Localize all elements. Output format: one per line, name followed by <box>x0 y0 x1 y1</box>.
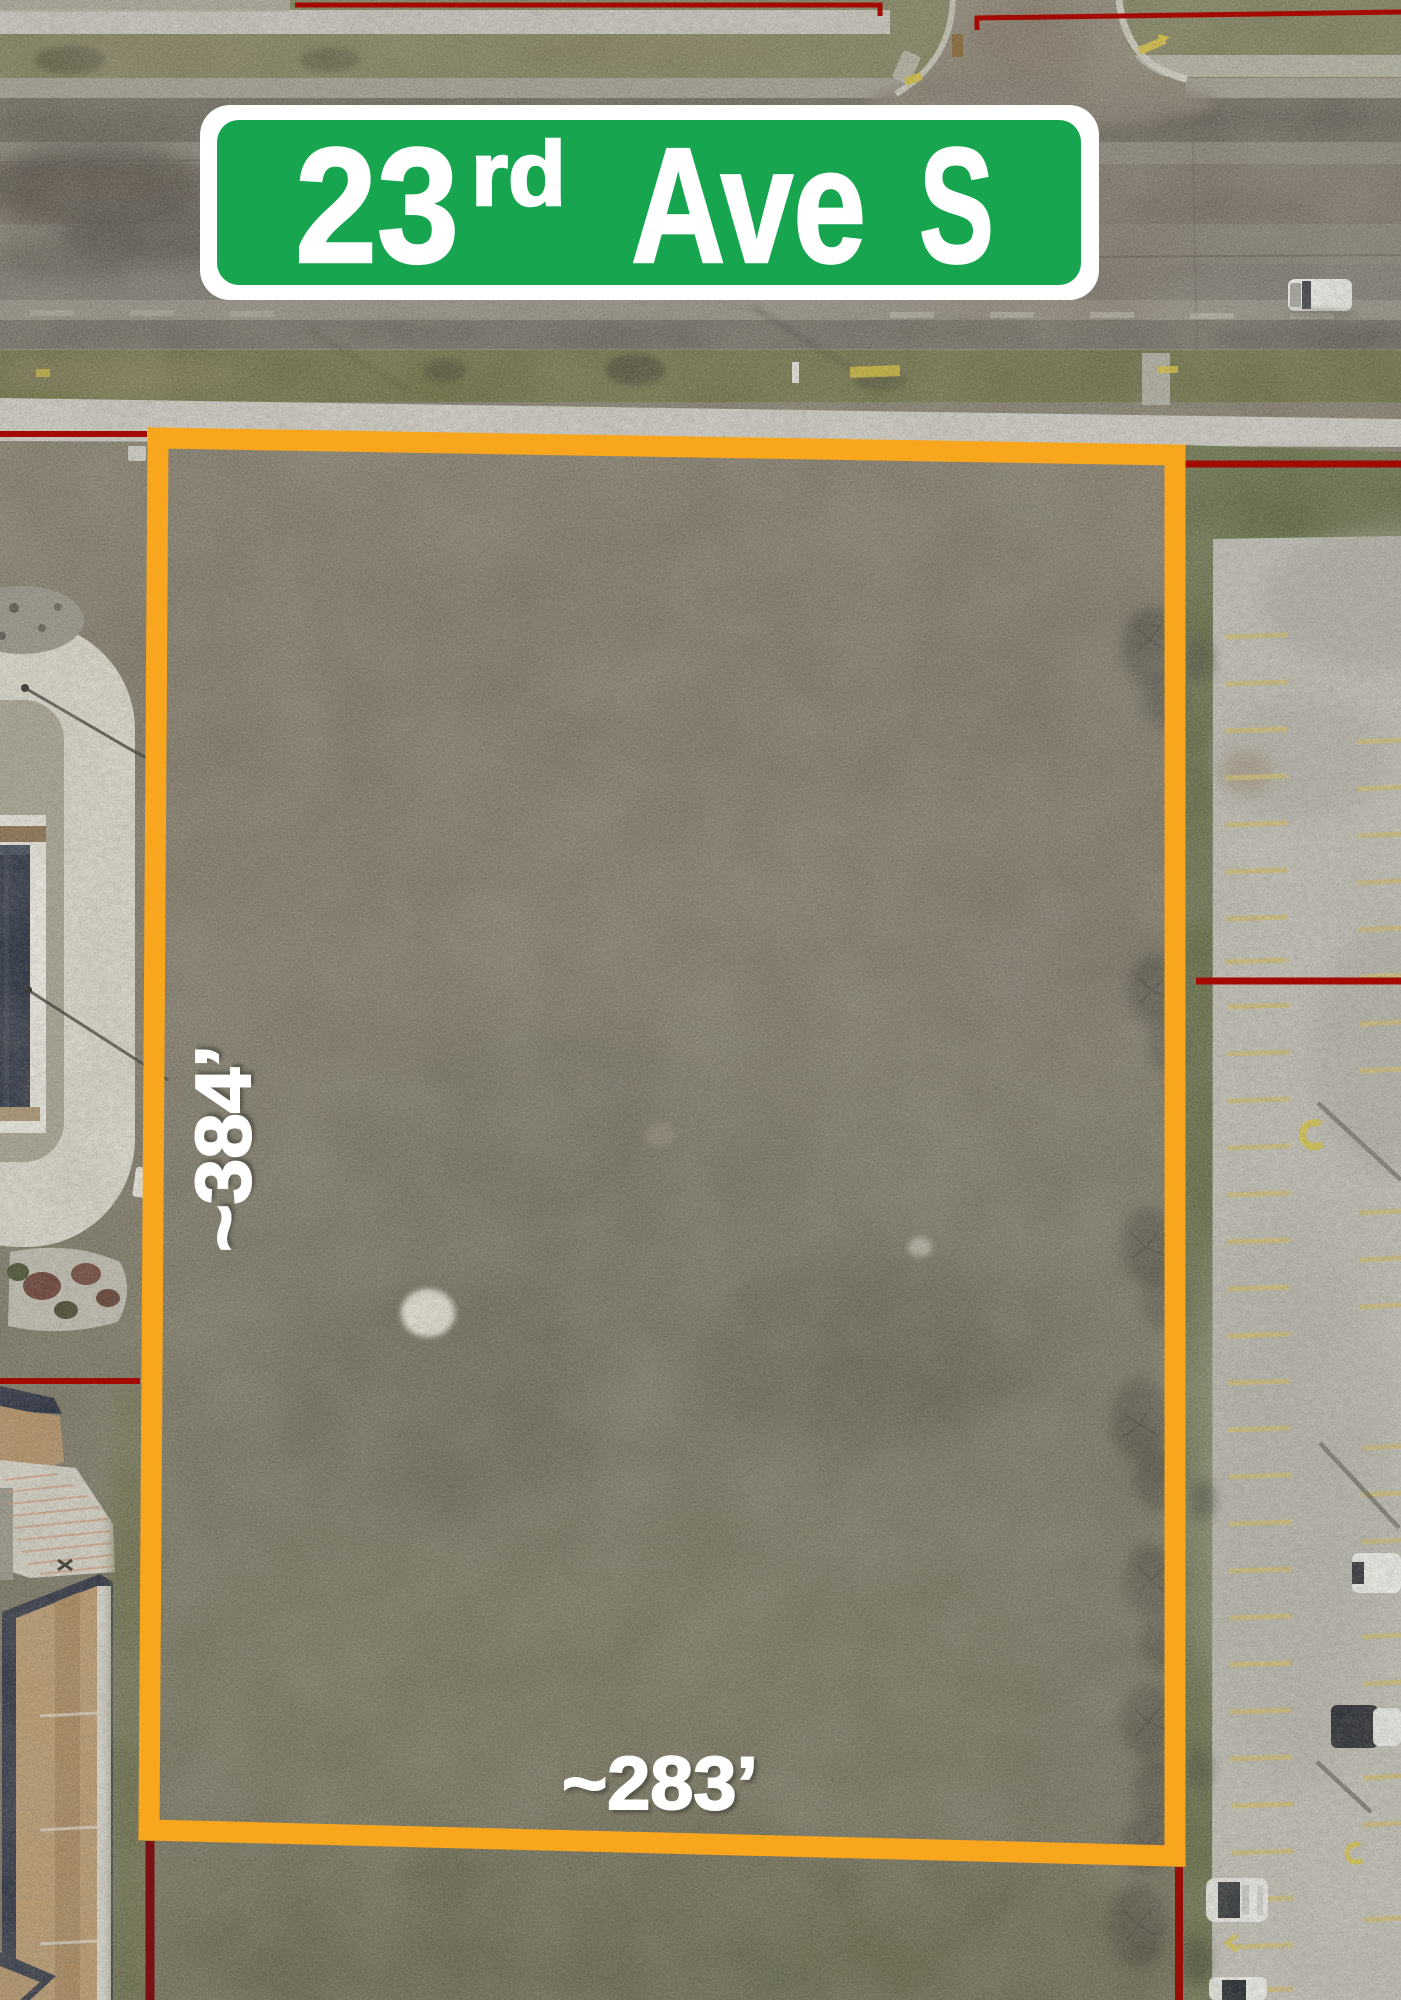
svg-text:~384’: ~384’ <box>179 1045 267 1252</box>
svg-text:23: 23 <box>295 114 459 297</box>
svg-text:Ave: Ave <box>631 114 866 297</box>
svg-text:rd: rd <box>471 124 566 225</box>
svg-text:~283’: ~283’ <box>562 1741 758 1825</box>
svg-text:S: S <box>919 114 994 297</box>
